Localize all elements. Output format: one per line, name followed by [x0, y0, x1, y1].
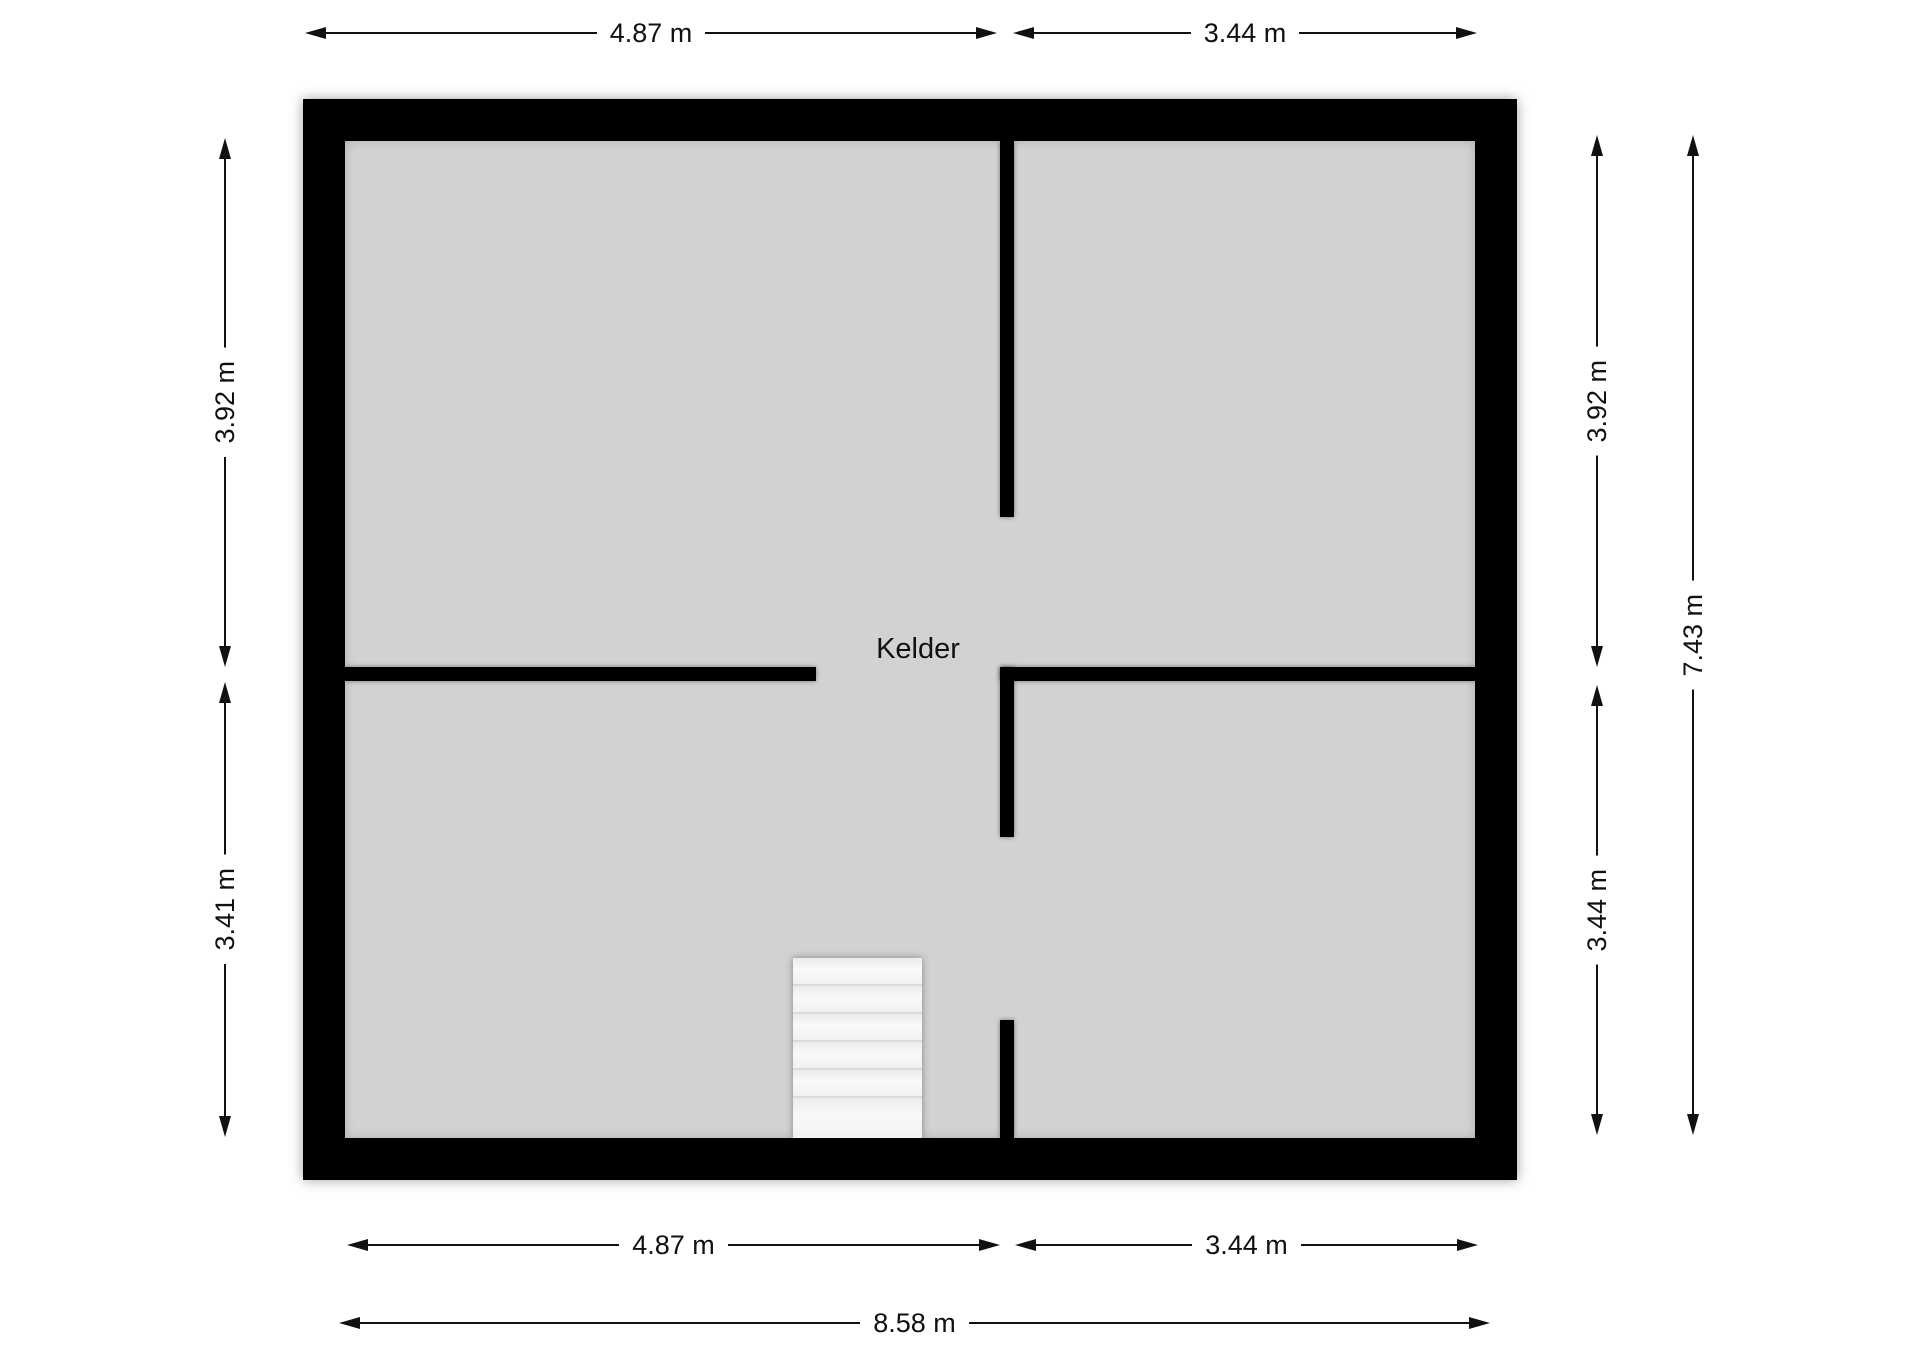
- stair-tread: [793, 1012, 922, 1040]
- dimension-label: 3.92 m: [1583, 347, 1611, 456]
- dimension-line: [360, 1322, 860, 1324]
- dimension-line: [224, 159, 226, 348]
- arrowhead-right-icon: [976, 27, 997, 39]
- arrowhead-down-icon: [1591, 1114, 1603, 1135]
- dimension-line: [224, 964, 226, 1116]
- dimension-label: 3.92 m: [211, 348, 239, 457]
- arrowhead-right-icon: [979, 1239, 1000, 1251]
- dimension-label: 3.44 m: [1583, 856, 1611, 965]
- dimension-line: [326, 32, 597, 34]
- dimension-bottom-total-width: 8.58 m: [339, 1309, 1490, 1337]
- arrowhead-up-icon: [1591, 685, 1603, 706]
- arrowhead-left-icon: [1013, 27, 1034, 39]
- dimension-line: [1692, 689, 1694, 1114]
- arrowhead-down-icon: [1591, 646, 1603, 667]
- arrowhead-up-icon: [1687, 135, 1699, 156]
- dimension-line: [1299, 32, 1456, 34]
- arrowhead-down-icon: [1687, 1114, 1699, 1135]
- dimension-label: 3.41 m: [211, 855, 239, 964]
- dimension-left-top-height: 3.92 m: [211, 138, 239, 667]
- interior-wall-center-vertical: [1000, 667, 1014, 837]
- dimension-line: [1596, 964, 1598, 1114]
- dimension-line: [1596, 455, 1598, 646]
- dimension-line: [1036, 1244, 1192, 1246]
- dimension-top-left-width: 4.87 m: [305, 19, 997, 47]
- room-label: Kelder: [818, 632, 1018, 666]
- dimension-line: [728, 1244, 979, 1246]
- staircase: [793, 958, 922, 1138]
- dimension-right-bottom-height: 3.44 m: [1583, 685, 1611, 1135]
- dimension-line: [1034, 32, 1191, 34]
- stair-tread: [793, 958, 922, 984]
- dimension-line: [224, 703, 226, 855]
- dimension-label: 4.87 m: [619, 1231, 728, 1259]
- stair-tread: [793, 984, 922, 1012]
- arrowhead-left-icon: [339, 1317, 360, 1329]
- dimension-line: [368, 1244, 619, 1246]
- interior-wall-middle-right-horizontal: [1000, 667, 1475, 681]
- dimension-right-total-height: 7.43 m: [1679, 135, 1707, 1135]
- dimension-top-right-width: 3.44 m: [1013, 19, 1477, 47]
- dimension-label: 8.58 m: [860, 1309, 969, 1337]
- dimension-label: 7.43 m: [1679, 581, 1707, 690]
- stair-tread: [793, 1040, 922, 1068]
- interior-wall-middle-left-horizontal: [345, 667, 816, 681]
- interior-wall-bottom-center-vertical: [1000, 1020, 1014, 1138]
- dimension-line: [969, 1322, 1469, 1324]
- arrowhead-right-icon: [1456, 27, 1477, 39]
- arrowhead-up-icon: [219, 682, 231, 703]
- dimension-line: [1692, 156, 1694, 581]
- dimension-bottom-left-width: 4.87 m: [347, 1231, 1000, 1259]
- arrowhead-left-icon: [1015, 1239, 1036, 1251]
- dimension-label: 3.44 m: [1191, 19, 1300, 47]
- dimension-left-bottom-height: 3.41 m: [211, 682, 239, 1137]
- arrowhead-down-icon: [219, 1116, 231, 1137]
- arrowhead-down-icon: [219, 646, 231, 667]
- arrowhead-up-icon: [1591, 135, 1603, 156]
- arrowhead-right-icon: [1457, 1239, 1478, 1251]
- dimension-line: [705, 32, 976, 34]
- stair-tread: [793, 1096, 922, 1138]
- dimension-line: [1301, 1244, 1457, 1246]
- arrowhead-left-icon: [347, 1239, 368, 1251]
- dimension-line: [1596, 706, 1598, 856]
- interior-wall-top-center-vertical: [1000, 141, 1014, 517]
- dimension-line: [1596, 156, 1598, 347]
- dimension-bottom-right-width: 3.44 m: [1015, 1231, 1478, 1259]
- dimension-right-top-height: 3.92 m: [1583, 135, 1611, 667]
- arrowhead-right-icon: [1469, 1317, 1490, 1329]
- dimension-line: [224, 457, 226, 646]
- stair-tread: [793, 1068, 922, 1096]
- dimension-label: 3.44 m: [1192, 1231, 1301, 1259]
- floorplan-basement: Kelder: [303, 99, 1517, 1180]
- arrowhead-left-icon: [305, 27, 326, 39]
- floorplan-canvas: Kelder 4.87 m 3.44 m 4.87 m 3.44 m 8.58 …: [0, 0, 1920, 1358]
- dimension-label: 4.87 m: [597, 19, 706, 47]
- arrowhead-up-icon: [219, 138, 231, 159]
